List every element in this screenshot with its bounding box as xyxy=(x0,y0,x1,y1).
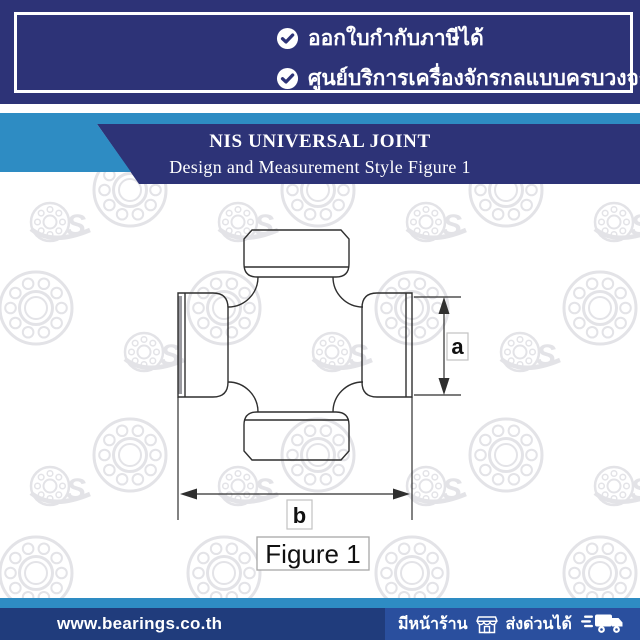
check-circle-icon xyxy=(276,27,299,50)
bottom-cup xyxy=(244,412,349,460)
page-title: NIS UNIVERSAL JOINT xyxy=(0,131,640,153)
top-banner: ออกใบกำกับภาษีได้ ศูนย์บริการเครื่องจักร… xyxy=(0,0,640,104)
top-cup xyxy=(244,230,349,277)
right-cup xyxy=(362,293,412,397)
storefront-badge-label: มีหน้าร้าน xyxy=(398,612,468,637)
left-cup xyxy=(178,293,228,397)
delivery-truck-icon xyxy=(580,612,625,636)
storefront-icon xyxy=(476,614,498,635)
footer-badges: มีหน้าร้าน ส่งด่วนได้ xyxy=(385,608,640,640)
dimension-a-arrow: a xyxy=(439,297,469,395)
banner-item: ศูนย์บริการเครื่องจักรกลแบบครบวงจร xyxy=(276,62,640,95)
footer-accent-strip xyxy=(0,598,640,608)
dimension-a-label: a xyxy=(451,334,464,359)
check-circle-icon xyxy=(276,67,299,90)
page-subtitle: Design and Measurement Style Figure 1 xyxy=(0,157,640,178)
header-accent-strip xyxy=(0,113,640,124)
dimension-b-label: b xyxy=(293,503,306,528)
figure-caption-text: Figure 1 xyxy=(265,539,360,569)
extension-lines xyxy=(178,297,461,520)
cross-body xyxy=(228,277,363,412)
dimension-b-arrow: b xyxy=(180,489,410,530)
express-delivery-badge-label: ส่งด่วนได้ xyxy=(506,612,572,637)
banner-item-label: ออกใบกำกับภาษีได้ xyxy=(308,22,484,55)
website-url: www.bearings.co.th xyxy=(57,608,222,640)
banner-item-label: ศูนย์บริการเครื่องจักรกลแบบครบวงจร xyxy=(308,62,640,95)
banner-item: ออกใบกำกับภาษีได้ xyxy=(276,22,640,55)
header-ribbon: NIS UNIVERSAL JOINT Design and Measureme… xyxy=(0,113,640,184)
figure-caption: Figure 1 xyxy=(257,537,369,570)
footer: www.bearings.co.th มีหน้าร้าน ส่งด่วนได้ xyxy=(0,598,640,640)
